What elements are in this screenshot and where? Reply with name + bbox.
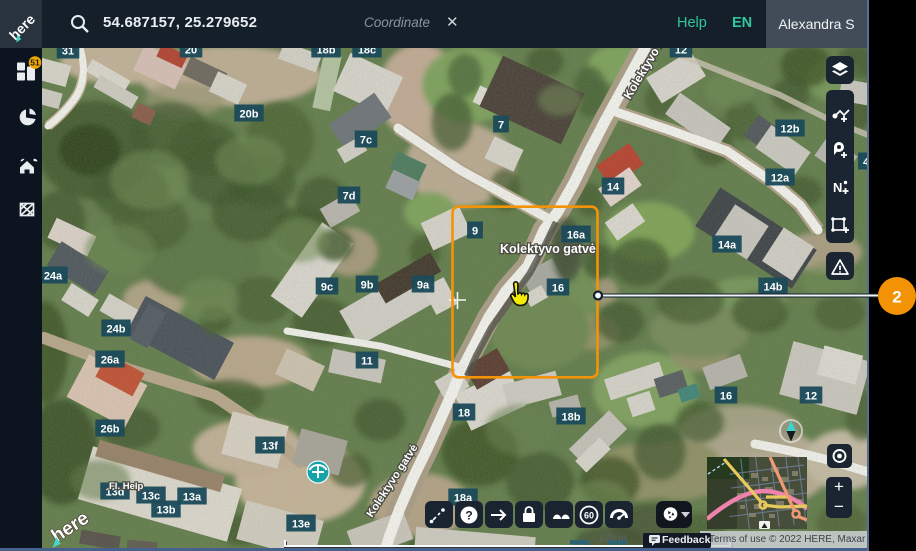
svg-text:2: 2 <box>892 288 901 307</box>
